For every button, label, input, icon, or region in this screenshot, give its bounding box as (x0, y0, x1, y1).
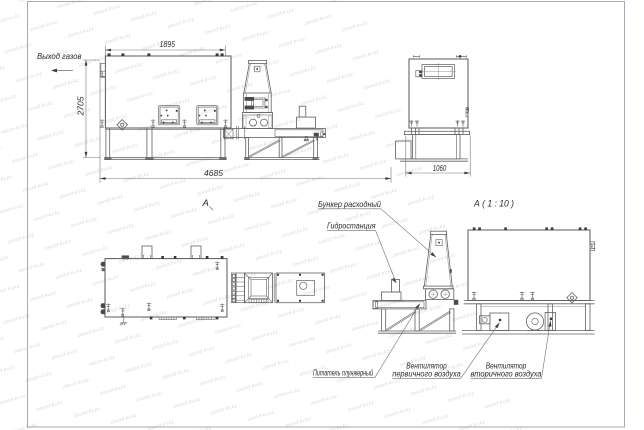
svg-text:zavod-kv.kz: zavod-kv.kz (125, 90, 155, 104)
svg-text:zavod-kv.kz: zavod-kv.kz (384, 136, 414, 150)
svg-text:zavod-kv.kz: zavod-kv.kz (106, 222, 136, 236)
svg-text:zavod-kv.kz: zavod-kv.kz (32, 209, 62, 223)
svg-text:zavod-kv.kz: zavod-kv.kz (136, 119, 166, 133)
svg-text:А ( 1 : 10 ): А ( 1 : 10 ) (473, 199, 514, 210)
svg-text:zavod-kv.kz: zavod-kv.kz (299, 94, 329, 108)
svg-text:первичного воздуха: первичного воздуха (392, 370, 461, 379)
svg-text:zavod-kv.kz: zavod-kv.kz (147, 148, 177, 162)
svg-text:Выход газов: Выход газов (37, 51, 82, 61)
svg-text:zavod-kv.kz: zavod-kv.kz (483, 397, 513, 411)
svg-text:zavod-kv.kz: zavod-kv.kz (0, 174, 13, 188)
svg-text:zavod-kv.kz: zavod-kv.kz (283, 416, 313, 430)
svg-text:zavod-kv.kz: zavod-kv.kz (0, 335, 5, 349)
svg-text:zavod-kv.kz: zavod-kv.kz (18, 0, 48, 4)
svg-text:zavod-kv.kz: zavod-kv.kz (0, 415, 1, 429)
svg-text:zavod-kv.kz: zavod-kv.kz (325, 71, 355, 85)
svg-text:zavod-kv.kz: zavod-kv.kz (69, 216, 99, 230)
svg-text:Бункер расходный: Бункер расходный (318, 200, 382, 209)
svg-text:zavod-kv.kz: zavod-kv.kz (198, 374, 228, 388)
svg-text:1895: 1895 (160, 40, 176, 49)
svg-text:zavod-kv.kz: zavod-kv.kz (209, 403, 239, 417)
svg-text:zavod-kv.kz: zavod-kv.kz (203, 23, 233, 37)
svg-text:zavod-kv.kz: zavod-kv.kz (65, 296, 95, 310)
svg-text:zavod-kv.kz: zavod-kv.kz (58, 187, 88, 201)
svg-text:zavod-kv.kz: zavod-kv.kz (332, 181, 362, 195)
svg-text:zavod-kv.kz: zavod-kv.kz (295, 174, 325, 188)
svg-text:zavod-kv.kz: zavod-kv.kz (317, 232, 347, 246)
svg-text:zavod-kv.kz: zavod-kv.kz (346, 400, 376, 414)
svg-text:zavod-kv.kz: zavod-kv.kz (183, 425, 213, 430)
svg-text:zavod-kv.kz: zavod-kv.kz (146, 419, 176, 430)
svg-text:zavod-kv.kz: zavod-kv.kz (446, 390, 476, 404)
svg-text:zavod-kv.kz: zavod-kv.kz (320, 422, 350, 430)
svg-text:zavod-kv.kz: zavod-kv.kz (43, 238, 73, 252)
svg-text:zavod-kv.kz: zavod-kv.kz (188, 74, 218, 88)
svg-text:zavod-kv.kz: zavod-kv.kz (132, 200, 162, 214)
svg-text:zavod-kv.kz: zavod-kv.kz (309, 393, 339, 407)
svg-text:zavod-kv.kz: zavod-kv.kz (143, 229, 173, 243)
svg-text:zavod-kv.kz: zavod-kv.kz (113, 332, 143, 346)
svg-text:zavod-kv.kz: zavod-kv.kz (110, 142, 140, 156)
svg-text:zavod-kv.kz: zavod-kv.kz (91, 274, 121, 288)
svg-text:zavod-kv.kz: zavod-kv.kz (358, 158, 388, 172)
svg-text:zavod-kv.kz: zavod-kv.kz (151, 68, 181, 82)
svg-text:zavod-kv.kz: zavod-kv.kz (102, 303, 132, 317)
svg-text:zavod-kv.kz: zavod-kv.kz (254, 248, 284, 262)
svg-text:zavod-kv.kz: zavod-kv.kz (243, 219, 273, 233)
svg-text:zavod-kv.kz: zavod-kv.kz (195, 184, 225, 198)
svg-text:zavod-kv.kz: zavod-kv.kz (213, 322, 243, 336)
svg-text:zavod-kv.kz: zavod-kv.kz (29, 19, 59, 33)
svg-text:zavod-kv.kz: zavod-kv.kz (250, 329, 280, 343)
svg-text:zavod-kv.kz: zavod-kv.kz (354, 239, 384, 253)
svg-text:zavod-kv.kz: zavod-kv.kz (206, 213, 236, 227)
svg-text:zavod-kv.kz: zavod-kv.kz (169, 206, 199, 220)
svg-text:zavod-kv.kz: zavod-kv.kz (25, 100, 55, 114)
svg-text:zavod-kv.kz: zavod-kv.kz (232, 190, 262, 204)
svg-text:zavod-kv.kz: zavod-kv.kz (0, 93, 17, 107)
svg-text:2705: 2705 (77, 96, 86, 117)
svg-text:Питатель плунжерный: Питатель плунжерный (313, 369, 373, 378)
svg-text:zavod-kv.kz: zavod-kv.kz (365, 268, 395, 282)
svg-text:zavod-kv.kz: zavod-kv.kz (24, 370, 54, 384)
svg-text:zavod-kv.kz: zavod-kv.kz (409, 384, 439, 398)
svg-text:zavod-kv.kz: zavod-kv.kz (221, 161, 251, 175)
svg-text:zavod-kv.kz: zavod-kv.kz (246, 409, 276, 423)
svg-text:zavod-kv.kz: zavod-kv.kz (258, 168, 288, 182)
svg-text:zavod-kv.kz: zavod-kv.kz (362, 78, 392, 92)
svg-text:zavod-kv.kz: zavod-kv.kz (494, 426, 524, 430)
svg-text:Гидростанция: Гидростанция (327, 222, 376, 231)
svg-text:zavod-kv.kz: zavod-kv.kz (155, 0, 185, 1)
svg-text:zavod-kv.kz: zavod-kv.kz (339, 290, 369, 304)
svg-text:zavod-kv.kz: zavod-kv.kz (235, 380, 265, 394)
svg-text:zavod-kv.kz: zavod-kv.kz (277, 36, 307, 50)
svg-text:zavod-kv.kz: zavod-kv.kz (84, 164, 114, 178)
svg-text:zavod-kv.kz: zavod-kv.kz (424, 332, 454, 346)
svg-text:zavod-kv.kz: zavod-kv.kz (121, 171, 151, 185)
svg-text:zavod-kv.kz: zavod-kv.kz (72, 406, 102, 420)
svg-text:zavod-kv.kz: zavod-kv.kz (161, 367, 191, 381)
svg-text:zavod-kv.kz: zavod-kv.kz (154, 258, 184, 272)
svg-text:zavod-kv.kz: zavod-kv.kz (95, 193, 125, 207)
svg-text:zavod-kv.kz: zavod-kv.kz (236, 110, 266, 124)
svg-text:zavod-kv.kz: zavod-kv.kz (17, 261, 47, 275)
svg-text:zavod-kv.kz: zavod-kv.kz (391, 245, 421, 259)
svg-text:zavod-kv.kz: zavod-kv.kz (324, 342, 354, 356)
svg-text:zavod-kv.kz: zavod-kv.kz (0, 203, 24, 217)
svg-text:zavod-kv.kz: zavod-kv.kz (395, 165, 425, 179)
svg-text:1060: 1060 (433, 164, 447, 173)
svg-text:zavod-kv.kz: zavod-kv.kz (303, 13, 333, 27)
svg-text:zavod-kv.kz: zavod-kv.kz (0, 13, 21, 27)
svg-text:zavod-kv.kz: zavod-kv.kz (87, 354, 117, 368)
svg-text:zavod-kv.kz: zavod-kv.kz (128, 280, 158, 294)
svg-text:zavod-kv.kz: zavod-kv.kz (103, 32, 133, 46)
svg-text:zavod-kv.kz: zavod-kv.kz (158, 177, 188, 191)
svg-text:4685: 4685 (204, 169, 224, 178)
svg-text:zavod-kv.kz: zavod-kv.kz (0, 64, 6, 78)
svg-text:zavod-kv.kz: zavod-kv.kz (269, 197, 299, 211)
svg-text:zavod-kv.kz: zavod-kv.kz (328, 261, 358, 275)
svg-text:zavod-kv.kz: zavod-kv.kz (340, 20, 370, 34)
svg-text:zavod-kv.kz: zavod-kv.kz (39, 319, 69, 333)
svg-text:zavod-kv.kz: zavod-kv.kz (420, 413, 450, 427)
svg-text:zavod-kv.kz: zavod-kv.kz (280, 226, 310, 240)
svg-text:zavod-kv.kz: zavod-kv.kz (191, 264, 221, 278)
svg-text:zavod-kv.kz: zavod-kv.kz (351, 49, 381, 63)
svg-text:zavod-kv.kz: zavod-kv.kz (0, 122, 28, 136)
svg-text:zavod-kv.kz: zavod-kv.kz (92, 3, 122, 17)
svg-text:zavod-kv.kz: zavod-kv.kz (272, 387, 302, 401)
svg-text:zavod-kv.kz: zavod-kv.kz (150, 338, 180, 352)
svg-text:zavod-kv.kz: zavod-kv.kz (124, 361, 154, 375)
svg-text:zavod-kv.kz: zavod-kv.kz (177, 45, 207, 59)
svg-text:zavod-kv.kz: zavod-kv.kz (347, 129, 377, 143)
svg-text:zavod-kv.kz: zavod-kv.kz (287, 335, 317, 349)
svg-text:zavod-kv.kz: zavod-kv.kz (172, 396, 202, 410)
svg-text:zavod-kv.kz: zavod-kv.kz (217, 242, 247, 256)
svg-text:zavod-kv.kz: zavod-kv.kz (329, 0, 359, 5)
svg-text:zavod-kv.kz: zavod-kv.kz (314, 42, 344, 56)
svg-text:zavod-kv.kz: zavod-kv.kz (265, 277, 295, 291)
svg-text:zavod-kv.kz: zavod-kv.kz (9, 422, 39, 430)
svg-text:zavod-kv.kz: zavod-kv.kz (10, 151, 40, 165)
svg-text:zavod-kv.kz: zavod-kv.kz (166, 16, 196, 30)
svg-text:zavod-kv.kz: zavod-kv.kz (61, 377, 91, 391)
svg-text:zavod-kv.kz: zavod-kv.kz (3, 42, 33, 56)
svg-text:zavod-kv.kz: zavod-kv.kz (129, 10, 159, 24)
svg-text:zavod-kv.kz: zavod-kv.kz (66, 26, 96, 40)
svg-text:zavod-kv.kz: zavod-kv.kz (14, 71, 44, 85)
svg-text:zavod-kv.kz: zavod-kv.kz (413, 303, 443, 317)
svg-text:zavod-kv.kz: zavod-kv.kz (276, 306, 306, 320)
svg-text:zavod-kv.kz: zavod-kv.kz (457, 419, 487, 430)
svg-text:zavod-kv.kz: zavod-kv.kz (361, 348, 391, 362)
svg-text:zavod-kv.kz: zavod-kv.kz (406, 194, 436, 208)
svg-text:zavod-kv.kz: zavod-kv.kz (80, 245, 110, 259)
svg-text:zavod-kv.kz: zavod-kv.kz (224, 351, 254, 365)
svg-text:zavod-kv.kz: zavod-kv.kz (372, 377, 402, 391)
svg-text:zavod-kv.kz: zavod-kv.kz (135, 390, 165, 404)
svg-text:zavod-kv.kz: zavod-kv.kz (187, 345, 217, 359)
svg-text:zavod-kv.kz: zavod-kv.kz (288, 65, 318, 79)
svg-text:zavod-kv.kz: zavod-kv.kz (261, 358, 291, 372)
svg-text:zavod-kv.kz: zavod-kv.kz (51, 77, 81, 91)
svg-text:zavod-kv.kz: zavod-kv.kz (162, 97, 192, 111)
svg-text:zavod-kv.kz: zavod-kv.kz (139, 309, 169, 323)
svg-text:zavod-kv.kz: zavod-kv.kz (50, 348, 80, 362)
svg-text:zavod-kv.kz: zavod-kv.kz (229, 0, 259, 14)
svg-text:zavod-kv.kz: zavod-kv.kz (88, 84, 118, 98)
svg-text:вторичного воздуха: вторичного воздуха (471, 370, 543, 379)
svg-text:zavod-kv.kz: zavod-kv.kz (114, 61, 144, 75)
svg-text:zavod-kv.kz: zavod-kv.kz (176, 316, 206, 330)
svg-text:zavod-kv.kz: zavod-kv.kz (383, 406, 413, 420)
svg-text:zavod-kv.kz: zavod-kv.kz (240, 29, 270, 43)
svg-text:zavod-kv.kz: zavod-kv.kz (350, 319, 380, 333)
svg-text:zavod-kv.kz: zavod-kv.kz (373, 107, 403, 121)
svg-text:zavod-kv.kz: zavod-kv.kz (0, 393, 27, 407)
svg-text:zavod-kv.kz: zavod-kv.kz (28, 290, 58, 304)
svg-text:zavod-kv.kz: zavod-kv.kz (266, 7, 296, 21)
svg-text:zavod-kv.kz: zavod-kv.kz (0, 254, 9, 268)
svg-text:A: A (202, 198, 209, 209)
svg-text:zavod-kv.kz: zavod-kv.kz (380, 216, 410, 230)
svg-text:zavod-kv.kz: zavod-kv.kz (0, 364, 16, 378)
svg-text:zavod-kv.kz: zavod-kv.kz (0, 283, 20, 297)
svg-text:zavod-kv.kz: zavod-kv.kz (461, 339, 491, 353)
svg-text:zavod-kv.kz: zavod-kv.kz (76, 325, 106, 339)
svg-text:zavod-kv.kz: zavod-kv.kz (36, 129, 66, 143)
svg-text:zavod-kv.kz: zavod-kv.kz (54, 267, 84, 281)
svg-text:zavod-kv.kz: zavod-kv.kz (180, 235, 210, 249)
svg-text:zavod-kv.kz: zavod-kv.kz (98, 383, 128, 397)
svg-text:zavod-kv.kz: zavod-kv.kz (35, 399, 65, 413)
svg-text:zavod-kv.kz: zavod-kv.kz (73, 135, 103, 149)
svg-text:zavod-kv.kz: zavod-kv.kz (321, 152, 351, 166)
svg-text:zavod-kv.kz: zavod-kv.kz (165, 287, 195, 301)
svg-text:zavod-kv.kz: zavod-kv.kz (0, 145, 2, 159)
svg-text:zavod-kv.kz: zavod-kv.kz (47, 158, 77, 172)
svg-text:zavod-kv.kz: zavod-kv.kz (21, 180, 51, 194)
svg-text:zavod-kv.kz: zavod-kv.kz (109, 412, 139, 426)
svg-text:zavod-kv.kz: zavod-kv.kz (291, 255, 321, 269)
svg-text:zavod-kv.kz: zavod-kv.kz (336, 100, 366, 114)
svg-text:zavod-kv.kz: zavod-kv.kz (6, 232, 36, 246)
svg-text:zavod-kv.kz: zavod-kv.kz (184, 155, 214, 169)
svg-text:zavod-kv.kz: zavod-kv.kz (313, 313, 343, 327)
svg-text:zavod-kv.kz: zavod-kv.kz (450, 310, 480, 324)
